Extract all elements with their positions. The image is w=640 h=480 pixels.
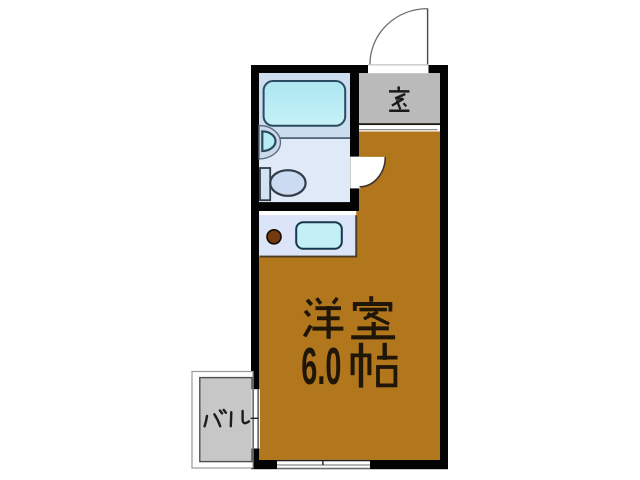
svg-text:6.0: 6.0 <box>301 337 341 395</box>
